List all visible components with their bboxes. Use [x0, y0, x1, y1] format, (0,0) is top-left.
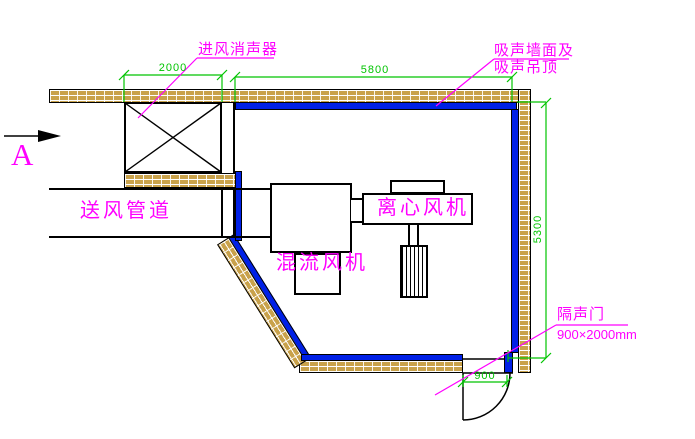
silencer-cross-icon	[125, 103, 221, 172]
leader-lines	[138, 58, 628, 395]
section-marker-label: A	[11, 139, 33, 172]
dim-room-depth: 5300	[532, 206, 544, 252]
dimension-lines	[119, 70, 551, 387]
dim-silencer-length: 2000	[150, 62, 196, 74]
intake-silencer-label: 进风消声器	[198, 42, 278, 58]
acoustic-door-label: 隔声门	[557, 307, 605, 323]
dim-door-width: 900	[462, 370, 508, 382]
centrifugal-fan-label: 离心风机	[377, 198, 469, 219]
acoustic-door-size-label: 900×2000mm	[557, 328, 637, 342]
door-symbol	[463, 359, 513, 420]
mixed-flow-fan-label: 混流风机	[276, 253, 368, 274]
supply-duct-label: 送风管道	[80, 201, 172, 222]
absorptive-wall-label-line1: 吸声墙面及	[494, 43, 574, 59]
dim-room-width: 5800	[352, 64, 398, 76]
fan-room-plan-drawing: 进风消声器 吸声墙面及 吸声吊顶 送风管道 离心风机 混流风机 隔声门 900×…	[0, 0, 695, 439]
absorptive-wall-label-line2: 吸声吊顶	[494, 60, 558, 76]
